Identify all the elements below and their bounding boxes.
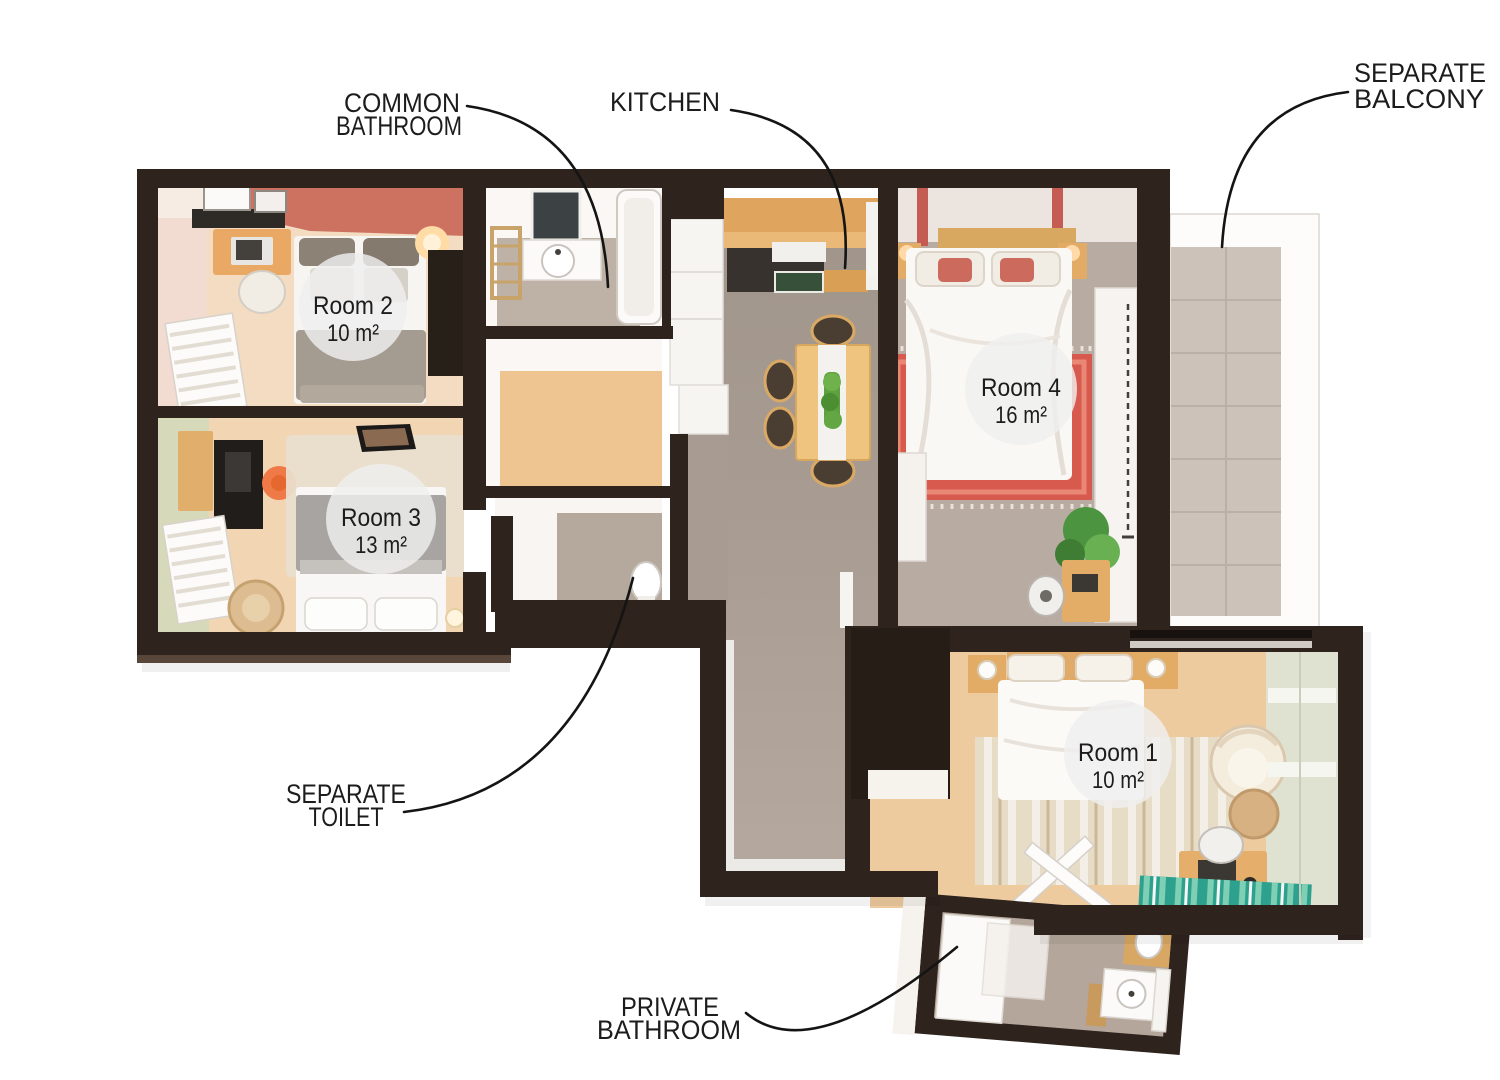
svg-text:BATHROOM: BATHROOM [597, 1015, 741, 1045]
svg-text:Room 2: Room 2 [313, 292, 393, 320]
svg-text:10 m²: 10 m² [327, 320, 379, 347]
svg-text:10 m²: 10 m² [1092, 767, 1144, 794]
svg-text:BATHROOM: BATHROOM [336, 111, 462, 141]
svg-text:TOILET: TOILET [309, 802, 384, 832]
svg-text:13 m²: 13 m² [355, 532, 407, 559]
svg-text:16 m²: 16 m² [995, 402, 1047, 429]
svg-text:BALCONY: BALCONY [1354, 84, 1484, 114]
svg-text:Room 4: Room 4 [981, 374, 1061, 402]
svg-text:KITCHEN: KITCHEN [610, 87, 720, 117]
svg-text:Room 3: Room 3 [341, 504, 421, 532]
svg-text:Room 1: Room 1 [1078, 739, 1158, 767]
